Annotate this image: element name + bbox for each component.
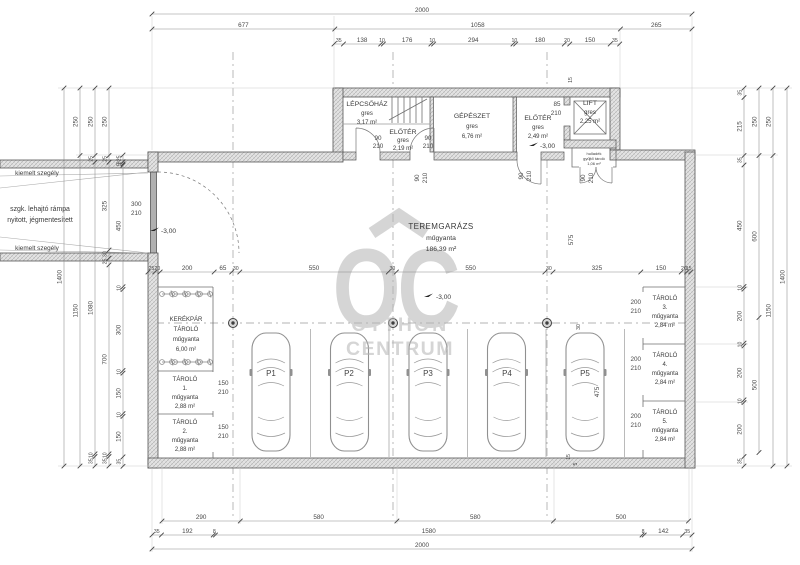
- door-size-t3-w: 200: [630, 299, 641, 306]
- door-size-eloter1-left-h: 210: [373, 143, 384, 150]
- room-gepeszet-area: 6,76 m²: [462, 134, 482, 140]
- room-teremgarazs-finish: műgyanta: [426, 235, 456, 242]
- dim-label: 200: [737, 424, 744, 435]
- room-tarolo2-area: 2,88 m²: [175, 447, 195, 453]
- dim-label: 250: [752, 116, 759, 127]
- dim-label: 300: [116, 324, 123, 335]
- curb-label-bottom: kiemelt szegély: [15, 245, 59, 252]
- room-tarolo4-area: 2,84 m²: [655, 380, 675, 386]
- dim-chain: 250600500: [752, 86, 762, 455]
- svg-text:30: 30: [576, 324, 582, 330]
- svg-text:90: 90: [518, 172, 525, 180]
- watermark-name-line2: CENTRUM: [346, 338, 454, 360]
- dim-label: 176: [402, 37, 413, 44]
- room-tarolo3-num: 3.: [662, 305, 667, 311]
- dim-label: 450: [116, 220, 123, 231]
- room-tarolo1-name: TÁROLÓ: [173, 376, 198, 383]
- dim-label: 35: [103, 458, 109, 464]
- dim-chain: 2502532530257001035: [102, 86, 112, 469]
- room-lift-area: 2,25 m²: [580, 119, 600, 125]
- room-tarolo5-num: 5.: [662, 419, 667, 425]
- dim-label: 5: [117, 163, 123, 166]
- dim-chain: 1400: [780, 86, 790, 469]
- car-p1: [250, 333, 293, 451]
- door-size-eloter1-left-w: 90: [374, 135, 382, 142]
- parking-label-p2: P2: [344, 369, 354, 378]
- dim-15-lift: 15: [568, 77, 574, 83]
- dim-chain: 290580580500: [160, 514, 691, 523]
- dim-label: 180: [535, 37, 546, 44]
- ramp-label-line2: nyitott, jégmentesített: [7, 217, 73, 224]
- dim-label: 192: [182, 528, 193, 535]
- dim-label: 290: [196, 514, 207, 521]
- dim-label: 65: [219, 265, 227, 272]
- dim-label: 250: [88, 116, 95, 127]
- dim-label: 35: [738, 90, 744, 96]
- dim-label: 1400: [780, 270, 787, 285]
- dim-label: 35: [738, 458, 744, 464]
- room-tarolo2-num: 2.: [182, 429, 187, 435]
- dim-label: 1080: [88, 301, 95, 316]
- dim-label: 550: [465, 265, 476, 272]
- svg-text:210: 210: [526, 170, 533, 181]
- room-kerekpar-finish: műgyanta: [173, 337, 200, 343]
- dim-label: 250: [73, 116, 80, 127]
- dim-chain: 258545010300101501015035: [116, 153, 126, 469]
- garage-gate: [151, 172, 157, 253]
- dim-label: 35: [684, 529, 690, 535]
- dim-label: 294: [468, 37, 479, 44]
- parking-label-p1: P1: [266, 369, 276, 378]
- svg-text:90: 90: [580, 174, 587, 182]
- room-tarolo4-finish: műgyanta: [652, 371, 679, 377]
- floorplan-sheet: OC OTTHON CENTRUM LÉPCSŐHÁZ gres 3,17 m²…: [0, 0, 800, 565]
- room-tarolo2-finish: műgyanta: [172, 438, 199, 444]
- dim-chain: 1400: [57, 86, 67, 469]
- dim-label: 215: [737, 121, 744, 132]
- room-eloter2-finish: gres: [532, 125, 544, 131]
- dim-label: 10: [738, 342, 744, 348]
- ramp-curb-wall-bottom: [0, 253, 148, 261]
- dim-label: 325: [102, 200, 109, 211]
- dim-label: 2000: [415, 7, 430, 14]
- door-size-t4-h: 210: [630, 365, 641, 372]
- room-lepcsohaz-area: 3,17 m²: [357, 120, 377, 126]
- watermark-name-line1: OTTHON: [351, 314, 448, 336]
- dim-label: 25: [103, 156, 109, 162]
- parking-label-p5: P5: [580, 369, 590, 378]
- room-tarolo5-area: 2,84 m²: [655, 437, 675, 443]
- dim-label: 10: [117, 369, 123, 375]
- svg-text:475: 475: [594, 386, 601, 397]
- dim-label: 250: [102, 116, 109, 127]
- dim-5-bottom: 5: [573, 462, 579, 465]
- dim-chain: 2502510801035: [88, 86, 98, 469]
- dim-label: 10: [117, 412, 123, 418]
- dim-label: 30: [233, 266, 239, 272]
- door-size-t5-h: 210: [630, 422, 641, 429]
- door-size-t5-w: 200: [630, 413, 641, 420]
- dim-label: 10: [738, 398, 744, 404]
- svg-text:15: 15: [566, 454, 572, 460]
- dim-label: 150: [116, 431, 123, 442]
- dim-chain: 3519281580814235: [150, 528, 695, 537]
- dim-label: 142: [658, 528, 669, 535]
- room-tarolo1-num: 1.: [182, 386, 187, 392]
- dim-label: 35: [336, 38, 342, 44]
- door-size-t1-w: 150: [218, 380, 229, 387]
- dim-label: 250: [766, 116, 773, 127]
- room-tarolo4-name: TÁROLÓ: [653, 352, 678, 359]
- level-value: -3,00: [436, 294, 451, 301]
- room-tarolo1-area: 2,88 m²: [175, 404, 195, 410]
- room-lift-finish: gres: [584, 110, 596, 116]
- dim-label: 35: [117, 459, 123, 465]
- svg-text:210: 210: [588, 172, 595, 183]
- door-size-t2-h: 210: [218, 433, 229, 440]
- ramp-label-line1: szgk. lehajtó rámpa: [10, 206, 70, 213]
- dim-label: 1150: [766, 303, 773, 317]
- room-gepeszet-name: GÉPÉSZET: [454, 111, 490, 120]
- room-lift-name: LIFT: [583, 100, 597, 107]
- dim-label: 35: [89, 458, 95, 464]
- room-kerekpar-name1: KERÉKPÁR: [170, 316, 203, 323]
- dim-label: 2000: [415, 542, 430, 549]
- dim-label: 200: [737, 310, 744, 321]
- dim-label: 35: [738, 157, 744, 163]
- dim-label: 1400: [57, 270, 64, 285]
- dim-label: 580: [313, 514, 324, 521]
- dim-label: 150: [585, 37, 596, 44]
- dim-label: 677: [238, 22, 249, 29]
- dim-label: 35: [154, 529, 160, 535]
- svg-text:90: 90: [414, 174, 421, 182]
- svg-text:5: 5: [573, 462, 579, 465]
- dim-label: 580: [470, 514, 481, 521]
- dim-label: 20: [564, 38, 570, 44]
- svg-text:575: 575: [568, 234, 575, 245]
- door-size-eloter1-right-w: 90: [424, 135, 432, 142]
- dim-label: 35: [612, 38, 618, 44]
- dim-label: 1058: [471, 22, 486, 29]
- dim-label: 450: [737, 220, 744, 231]
- svg-text:210: 210: [422, 172, 429, 183]
- door-size-garage1: 90 210: [414, 172, 429, 183]
- dim-label: 10: [89, 452, 95, 458]
- dim-575: 575: [568, 234, 575, 245]
- dim-chain: 2000: [150, 542, 695, 551]
- dim-label: 500: [752, 379, 759, 390]
- gate-swing-arc: [158, 172, 239, 253]
- svg-text:15: 15: [568, 77, 574, 83]
- dim-label: 700: [102, 354, 109, 365]
- door-size-lift-w: 85: [553, 101, 561, 108]
- room-tarolo4-num: 4.: [662, 362, 667, 368]
- dim-15-bottom: 15: [566, 454, 572, 460]
- room-eloter1-area: 2,19 m²: [393, 146, 413, 152]
- door-size-t2-w: 150: [218, 424, 229, 431]
- dim-label: 500: [616, 514, 627, 521]
- dim-label: 150: [656, 265, 667, 272]
- room-lepcsohaz-name: LÉPCSŐHÁZ: [346, 99, 387, 108]
- room-tarolo3-area: 2,84 m²: [655, 323, 675, 329]
- dim-label: 138: [357, 37, 368, 44]
- door-size-waste: 90 210: [580, 172, 595, 183]
- dim-label: 15: [686, 266, 692, 272]
- room-kerekpar-area: 6,00 m²: [176, 347, 196, 353]
- door-size-lift-h: 210: [551, 110, 562, 117]
- door-size-t4-w: 200: [630, 356, 641, 363]
- dim-label: 10: [117, 285, 123, 291]
- dim-label: 25: [103, 258, 109, 264]
- dim-label: 550: [309, 265, 320, 272]
- room-tarolo3-name: TÁROLÓ: [653, 295, 678, 302]
- door-size-eloter1-right-h: 210: [423, 143, 434, 150]
- room-tarolo1-finish: műgyanta: [172, 395, 199, 401]
- dim-chain: 2501150: [766, 86, 776, 469]
- dim-chain: 352153545010200102001020035: [737, 86, 747, 469]
- room-eloter2-area: 2,49 m²: [528, 134, 548, 140]
- room-kisraktar-line3: 1,06 m²: [587, 161, 601, 166]
- room-tarolo3-finish: műgyanta: [652, 314, 679, 320]
- room-gepeszet-finish: gres: [466, 124, 478, 130]
- room-tarolo5-finish: műgyanta: [652, 428, 679, 434]
- ramp-curb-wall-top: [0, 160, 148, 168]
- dim-475: 475: [594, 386, 601, 397]
- room-kerekpar-name2: TÁROLÓ: [174, 326, 199, 333]
- room-tarolo2-name: TÁROLÓ: [173, 419, 198, 426]
- level-value: -3,00: [161, 228, 176, 235]
- room-teremgarazs-area: 186,39 m²: [426, 246, 457, 253]
- door-size-t1-h: 210: [218, 389, 229, 396]
- dim-label: 25: [148, 266, 154, 272]
- dim-chain: 351381017610294101802015035: [332, 37, 622, 46]
- dim-label: 20: [155, 266, 161, 272]
- level-value: -3,00: [540, 143, 555, 150]
- dim-label: 30: [389, 266, 395, 272]
- dim-label: 10: [103, 452, 109, 458]
- dim-label: 1150: [73, 303, 80, 317]
- dim-label: 265: [651, 22, 662, 29]
- room-teremgarazs-name: TEREMGARÁZS: [408, 222, 473, 231]
- level-marker-eloter: -3,00: [529, 143, 555, 151]
- door-size-t3-h: 210: [630, 308, 641, 315]
- dim-chain: 6771058265: [150, 22, 695, 31]
- dim-label: 30: [103, 251, 109, 257]
- dim-label: 325: [592, 265, 603, 272]
- dim-chain: 2000: [150, 7, 695, 16]
- parking-label-p3: P3: [423, 369, 433, 378]
- dim-label: 600: [752, 231, 759, 242]
- car-p4: [485, 333, 528, 451]
- gate-size-w: 300: [131, 201, 142, 208]
- dim-30: 30: [576, 324, 582, 330]
- dim-label: 25: [89, 156, 95, 162]
- gate-size-h: 210: [131, 210, 142, 217]
- room-eloter1-finish: gres: [397, 138, 409, 144]
- dim-label: 10: [738, 285, 744, 291]
- floorplan-drawing: OC OTTHON CENTRUM LÉPCSŐHÁZ gres 3,17 m²…: [0, 0, 800, 565]
- room-lepcsohaz-finish: gres: [361, 111, 373, 117]
- room-eloter2-name: ELŐTÉR: [524, 113, 551, 122]
- dim-label: 8: [642, 529, 645, 535]
- dim-label: 200: [182, 265, 193, 272]
- dim-label: 200: [737, 367, 744, 378]
- dim-label: 1580: [422, 528, 437, 535]
- room-eloter1-name: ELŐTÉR: [389, 127, 416, 136]
- dim-label: 8: [213, 529, 216, 535]
- dim-chain: 2501150: [73, 86, 83, 469]
- room-tarolo5-name: TÁROLÓ: [653, 409, 678, 416]
- dim-label: 30: [546, 266, 552, 272]
- dim-label: 150: [116, 388, 123, 399]
- parking-label-p4: P4: [502, 369, 512, 378]
- curb-label-top: kiemelt szegély: [15, 170, 59, 177]
- dim-label: 25: [117, 155, 123, 161]
